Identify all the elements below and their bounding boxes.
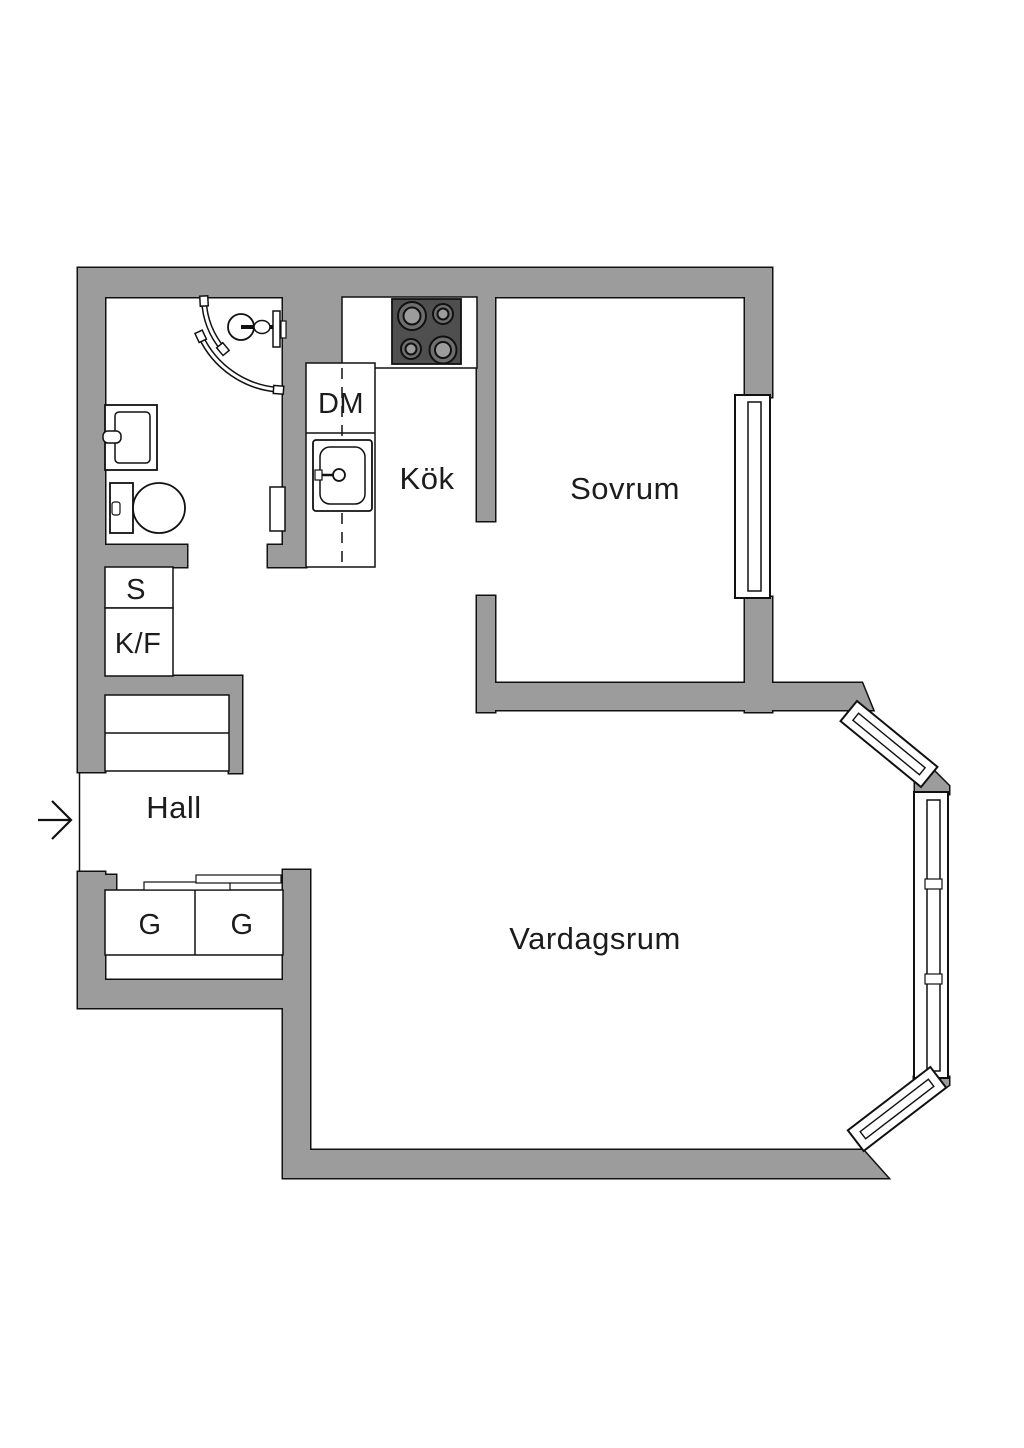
bathroom-radiator <box>270 487 285 531</box>
bedroom-label: Sovrum <box>570 471 680 506</box>
wall-bathroom-bottom <box>78 545 187 567</box>
floor-plan: Kök Sovrum Hall Vardagsrum DM S K/F G G <box>0 0 1024 1448</box>
fridge-freezer-label: K/F <box>115 628 162 660</box>
living-room-label: Vardagsrum <box>509 921 681 956</box>
wall-hall-top-band <box>78 676 242 695</box>
hall-shelf <box>105 695 229 771</box>
toilet-icon <box>110 483 185 533</box>
dishwasher-label: DM <box>318 388 364 420</box>
bedroom-window <box>735 395 770 598</box>
bay-window-vertical <box>914 792 948 1078</box>
sink-icon <box>103 405 157 470</box>
wall-step <box>105 875 116 891</box>
wardrobe-label-1: G <box>138 909 161 941</box>
wall-wardrobe-bottom <box>78 980 310 1008</box>
wall-kitchen-corner-block <box>283 295 342 363</box>
wall-livingroom-left <box>283 870 310 1178</box>
wall-top <box>78 268 772 297</box>
stove-icon <box>392 299 461 364</box>
floor-plan-page: Kök Sovrum Hall Vardagsrum DM S K/F G G <box>0 0 1024 1448</box>
wall-left-upper <box>78 268 105 772</box>
wall-livingroom-bottom <box>288 1150 888 1178</box>
wall-kitchen-bedroom-upper <box>477 295 495 521</box>
wall-bathroom-kitchen-foot <box>268 545 306 567</box>
cleaning-closet-label: S <box>126 574 146 606</box>
kitchen-label: Kök <box>400 461 455 496</box>
sliding-door-2 <box>196 875 281 883</box>
wall-kitchen-bedroom-lower <box>477 596 495 712</box>
wall-hall-strip <box>229 695 242 773</box>
wardrobe-label-2: G <box>230 909 253 941</box>
wall-bedroom-bottom <box>495 683 873 710</box>
wall-bedroom-right-upper <box>745 295 772 397</box>
hall-label: Hall <box>146 790 201 825</box>
kitchen-sink-icon <box>313 440 372 511</box>
